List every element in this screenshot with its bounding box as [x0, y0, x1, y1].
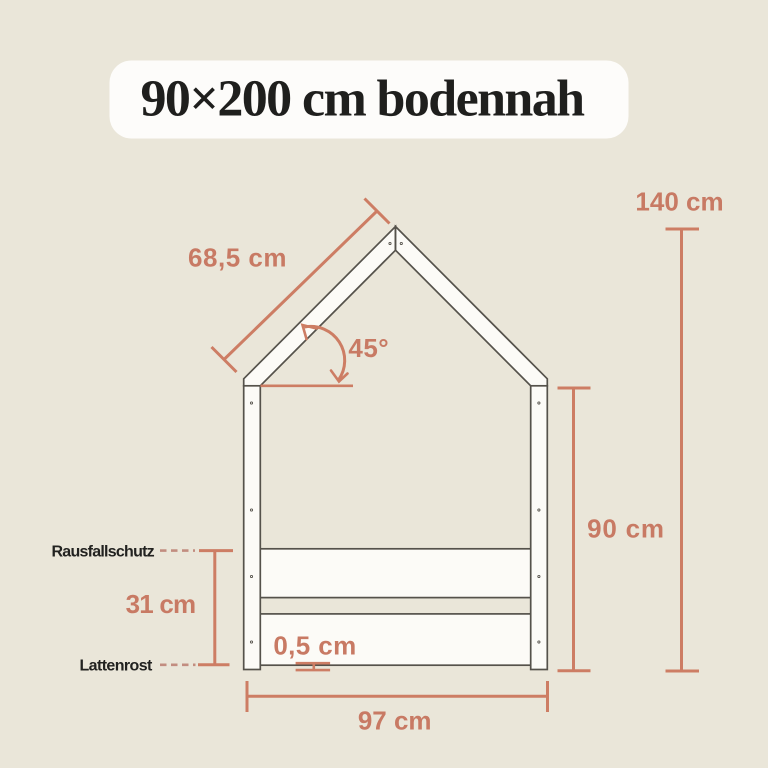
svg-text:140 cm: 140 cm	[635, 187, 723, 217]
svg-text:45°: 45°	[348, 333, 389, 363]
svg-text:Lattenrost: Lattenrost	[80, 657, 153, 674]
svg-text:97 cm: 97 cm	[358, 706, 432, 736]
svg-text:Rausfallschutz: Rausfallschutz	[52, 543, 155, 560]
svg-text:31 cm: 31 cm	[126, 589, 196, 619]
svg-text:68,5 cm: 68,5 cm	[188, 243, 287, 273]
svg-text:90×200 cm bodennah: 90×200 cm bodennah	[141, 71, 586, 128]
svg-text:90 cm: 90 cm	[587, 514, 665, 544]
svg-text:0,5 cm: 0,5 cm	[273, 630, 356, 660]
